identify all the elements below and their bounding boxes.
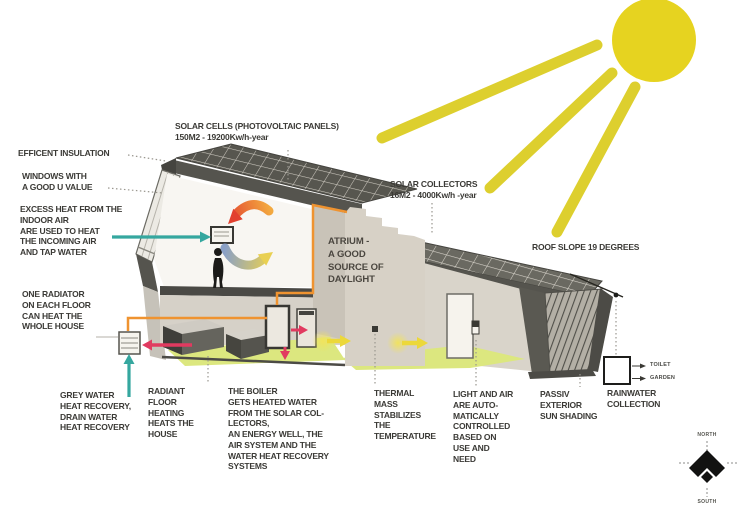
label-roof-slope: ROOF SLOPE 19 DEGREES (532, 242, 639, 253)
compass-rose (679, 441, 737, 497)
diagram-canvas: SOLAR CELLS (PHOTOVOLTAIC PANELS) 150M2 … (0, 0, 740, 520)
label-solar-collectors: SOLAR COLLECTORS 16M2 - 4000Kw/h -year (390, 179, 477, 201)
door (447, 294, 473, 358)
label-light-air: LIGHT AND AIR ARE AUTO- MATICALLY CONTRO… (453, 389, 513, 464)
sun-icon (612, 0, 696, 82)
label-excess-heat: EXCESS HEAT FROM THE INDOOR AIR ARE USED… (20, 204, 122, 258)
label-one-radiator: ONE RADIATOR ON EACH FLOOR CAN HEAT THE … (22, 289, 91, 332)
sun-shading-slats (519, 287, 613, 379)
sun-rays (382, 45, 635, 232)
label-garden: GARDEN (650, 375, 675, 381)
label-toilet: TOILET (650, 362, 671, 368)
label-passive-shading: PASSIV EXTERIOR SUN SHADING (540, 389, 597, 421)
label-efficient-insulation: EFFICENT INSULATION (18, 148, 109, 159)
label-atrium: ATRIUM - A GOOD SOURCE OF DAYLIGHT (328, 236, 384, 287)
label-thermal-mass: THERMAL MASS STABILIZES THE TEMPERATURE (374, 388, 436, 442)
label-radiant-floor: RADIANT FLOOR HEATING HEATS THE HOUSE (148, 386, 194, 440)
label-rainwater: RAINWATER COLLECTION (607, 388, 660, 410)
boiler-unit (266, 306, 289, 348)
label-solar-cells: SOLAR CELLS (PHOTOVOLTAIC PANELS) 150M2 … (175, 121, 339, 143)
label-boiler: THE BOILER GETS HEATED WATER FROM THE SO… (228, 386, 329, 472)
label-grey-water: GREY WATER HEAT RECOVERY, DRAIN WATER HE… (60, 390, 131, 433)
rainwater-collection-box (604, 357, 646, 384)
heat-exchanger-unit (211, 227, 233, 243)
label-windows: WINDOWS WITH A GOOD U VALUE (22, 171, 92, 193)
radiator-unit (96, 332, 140, 354)
label-south: SOUTH (698, 499, 717, 505)
thermal-mass-anchor (372, 326, 378, 332)
label-north: NORTH (697, 432, 716, 438)
